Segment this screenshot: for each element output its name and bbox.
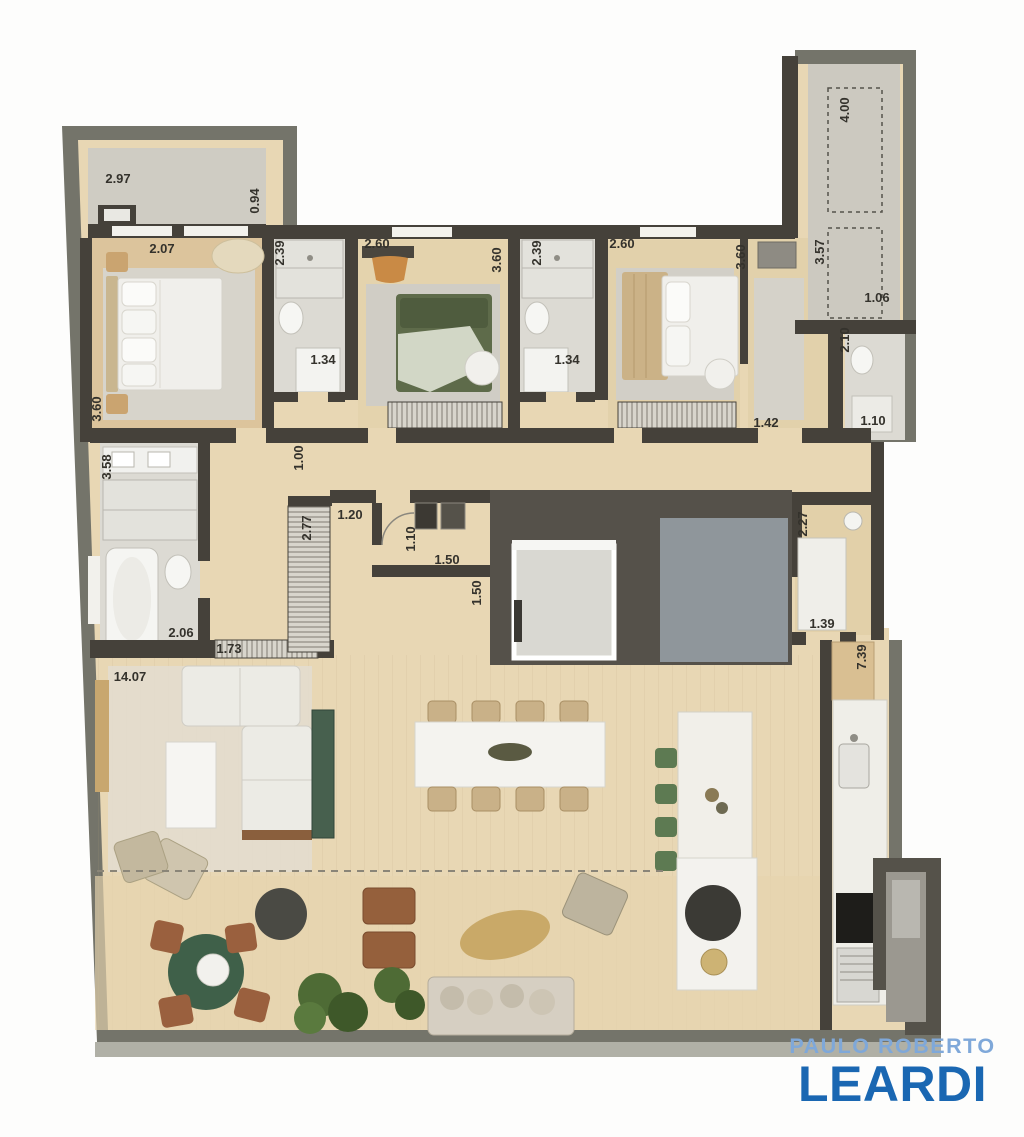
brand-logo-line1: PAULO ROBERTO <box>770 1036 1015 1058</box>
dim-hall-cabinet: 1.73 <box>216 641 241 656</box>
dim-bathR-door: 1.10 <box>860 413 885 428</box>
fire-bowl <box>685 885 741 941</box>
oven <box>837 948 879 1002</box>
dim-corridor-width: 1.00 <box>291 445 306 470</box>
terrace-chair <box>149 919 185 955</box>
pantry-sink <box>844 512 862 530</box>
dim-bathL-depth: 3.58 <box>99 454 114 479</box>
dim-bedroom3-width: 2.60 <box>609 236 634 251</box>
dim-bedroom2-depth: 3.60 <box>489 247 504 272</box>
bed-2 <box>396 294 499 392</box>
bedroom-row-top-wall <box>264 225 795 239</box>
wardrobe-3 <box>618 402 736 428</box>
living-room <box>95 666 334 902</box>
dim-balcony-width: 2.97 <box>105 171 130 186</box>
dim-bedroom3-depth: 3.60 <box>733 244 748 269</box>
console <box>95 680 109 792</box>
coffee-table <box>166 742 216 828</box>
stool <box>701 949 727 975</box>
dining-chair <box>428 701 456 723</box>
brand-logo: PAULO ROBERTO LEARDI <box>770 1036 1015 1110</box>
dim-corridor2-width: 1.20 <box>337 507 362 522</box>
dim-closet-opening: 1.42 <box>753 415 778 430</box>
brand-logo-line2: LEARDI <box>770 1059 1015 1110</box>
shaft-panel <box>660 518 788 662</box>
dining-chair <box>516 701 544 723</box>
terrace-chair <box>158 993 195 1028</box>
bedroom-row-wall <box>90 428 871 443</box>
dim-wardrobe-depth: 2.77 <box>299 515 314 540</box>
floorplan-page: 2.97 0.94 2.07 3.60 2.39 1.34 2.60 3.60 … <box>0 0 1024 1137</box>
central-core <box>490 490 792 665</box>
master-bedroom <box>80 225 274 442</box>
bed-3 <box>622 272 738 389</box>
dim-bathR-depth: 2.10 <box>837 327 852 352</box>
floorplan-drawing: 2.97 0.94 2.07 3.60 2.39 1.34 2.60 3.60 … <box>0 0 1024 1137</box>
dim-balcony-depth: 0.94 <box>247 188 262 214</box>
island-stool <box>655 784 677 804</box>
kitchen-sink <box>839 744 869 788</box>
dim-entry-width: 1.10 <box>403 526 418 551</box>
dim-bath2-depth: 2.39 <box>529 240 544 265</box>
kitchen-faucet <box>850 734 858 742</box>
bathtub <box>106 548 158 650</box>
nightstand <box>106 394 128 414</box>
island-faucet <box>705 788 719 802</box>
gourmet-island <box>677 858 757 990</box>
dim-master-depth: 3.60 <box>89 396 104 421</box>
cooktop <box>836 893 876 943</box>
elevator <box>512 540 616 658</box>
dim-closet-depth: 3.57 <box>812 239 827 264</box>
outdoor-sofa <box>428 977 574 1035</box>
dining-chair <box>472 701 500 723</box>
desk-chair <box>372 256 408 283</box>
dining-chair <box>560 701 588 723</box>
dim-master-width: 2.07 <box>149 241 174 256</box>
dim-tech-depth: 4.00 <box>837 97 852 122</box>
dim-bath1-width: 1.34 <box>310 352 336 367</box>
dim-living-width: 14.07 <box>114 669 147 684</box>
dining-chair <box>428 787 456 811</box>
table-bowl <box>197 954 229 986</box>
green-shelf <box>312 710 334 838</box>
terrace-chair <box>224 922 258 954</box>
island-stool <box>655 817 677 837</box>
master-balcony <box>88 148 266 238</box>
master-bed <box>106 276 222 392</box>
ottoman <box>255 888 307 940</box>
island-stool <box>655 851 677 871</box>
dim-entry-depth: 1.50 <box>434 552 459 567</box>
lounger <box>363 932 415 968</box>
dim-elevator-side: 1.50 <box>469 580 484 605</box>
lounger <box>363 888 415 924</box>
dim-bath1-depth: 2.39 <box>272 240 287 265</box>
toilet <box>165 555 191 589</box>
dim-pantry-width: 1.39 <box>809 616 834 631</box>
dim-pantry-depth: 2.27 <box>795 511 810 536</box>
bedroom-3 <box>608 238 748 430</box>
master-bench <box>212 239 264 273</box>
dining-chair <box>516 787 544 811</box>
dining-chair <box>472 787 500 811</box>
dresser <box>758 242 796 268</box>
wardrobe-2 <box>388 402 502 428</box>
dim-bathL-width: 2.06 <box>168 625 193 640</box>
centerpiece <box>488 743 532 761</box>
nightstand <box>106 252 128 272</box>
dining-chair <box>560 787 588 811</box>
dim-bedroom2-width: 2.60 <box>364 236 389 251</box>
dim-kitchen-run: 7.39 <box>854 644 869 669</box>
dim-bath2-width: 1.34 <box>554 352 580 367</box>
entry-cabinet <box>441 503 465 529</box>
entry-cabinet <box>415 503 437 529</box>
island-stool <box>655 748 677 768</box>
dim-bathR-width: 1.06 <box>864 290 889 305</box>
